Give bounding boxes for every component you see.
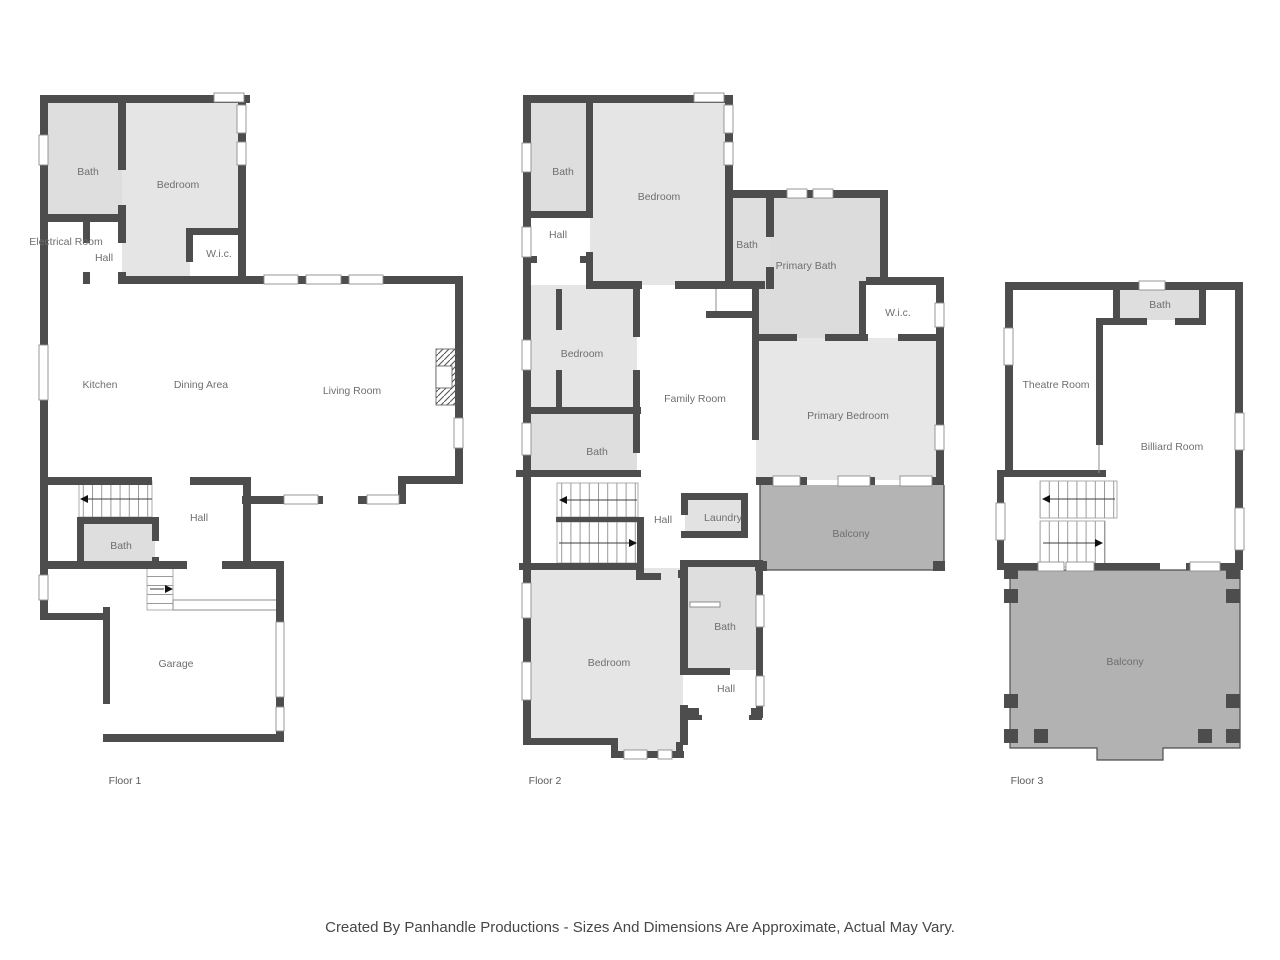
room-label-bath-small: Bath [736,239,758,251]
room-label-bath-tl: Bath [552,166,574,178]
room-label-electrical: Electrical Room [29,236,103,248]
floor-3-label: Floor 3 [1011,775,1044,787]
floor-3-walls [997,282,1243,570]
floor-2-plan: Bath Bedroom Hall Bath Primary Bath W.i.… [516,93,945,787]
room-label-billiard-room: Billiard Room [1141,441,1204,453]
room-label-bath-bottom: Bath [714,621,736,633]
room-label-hall-mid: Hall [654,514,672,526]
room-label-wic-1: W.i.c. [206,248,232,260]
room-label-hall-top: Hall [549,229,567,241]
fireplace [436,349,458,405]
staircase-floor2-upper [557,483,638,517]
room-label-bath-mid: Bath [586,446,608,458]
room-label-bedroom-mid: Bedroom [561,348,604,360]
room-label-bath-2: Bath [110,540,132,552]
staircase-floor3-upper [1040,481,1117,518]
floorplan-page: Bath Bedroom Electrical Room Hall W.i.c.… [0,0,1280,960]
room-label-bedroom-top: Bedroom [638,191,681,203]
floorplan-drawing: Bath Bedroom Electrical Room Hall W.i.c.… [0,0,1280,960]
floor-2-label: Floor 2 [529,775,562,787]
room-label-primary-bedroom: Primary Bedroom [807,410,889,422]
room-label-balcony-2: Balcony [832,528,870,540]
room-label-kitchen: Kitchen [82,379,117,391]
room-label-hall-2: Hall [190,512,208,524]
room-label-bath-1: Bath [77,166,99,178]
room-label-garage: Garage [158,658,193,670]
vanity-bar [690,289,720,607]
floor-1-plan: Bath Bedroom Electrical Room Hall W.i.c.… [29,93,463,787]
room-label-bedroom-bottom: Bedroom [588,657,631,669]
staircase-floor1-main [79,481,152,517]
room-label-hall-bottom: Hall [717,683,735,695]
room-label-family-room: Family Room [664,393,726,405]
room-label-laundry: Laundry [704,512,743,524]
room-label-bath-3: Bath [1149,299,1171,311]
floor-3-plan: Bath Theatre Room Billiard Room Balcony … [996,281,1244,787]
room-label-living-room: Living Room [323,385,382,397]
room-label-bedroom-1: Bedroom [157,179,200,191]
room-label-dining-area: Dining Area [174,379,228,391]
staircase-floor2-lower [557,522,638,563]
room-label-wic-2: W.i.c. [885,307,911,319]
room-label-theatre-room: Theatre Room [1022,379,1089,391]
staircase-floor1-entry [147,568,278,610]
staircase-floor3-lower [1040,521,1105,567]
room-label-hall-1: Hall [95,252,113,264]
room-label-primary-bath: Primary Bath [776,260,837,272]
floor-1-label: Floor 1 [109,775,142,787]
footer-disclaimer: Created By Panhandle Productions - Sizes… [325,919,955,936]
room-label-balcony-3: Balcony [1106,656,1144,668]
